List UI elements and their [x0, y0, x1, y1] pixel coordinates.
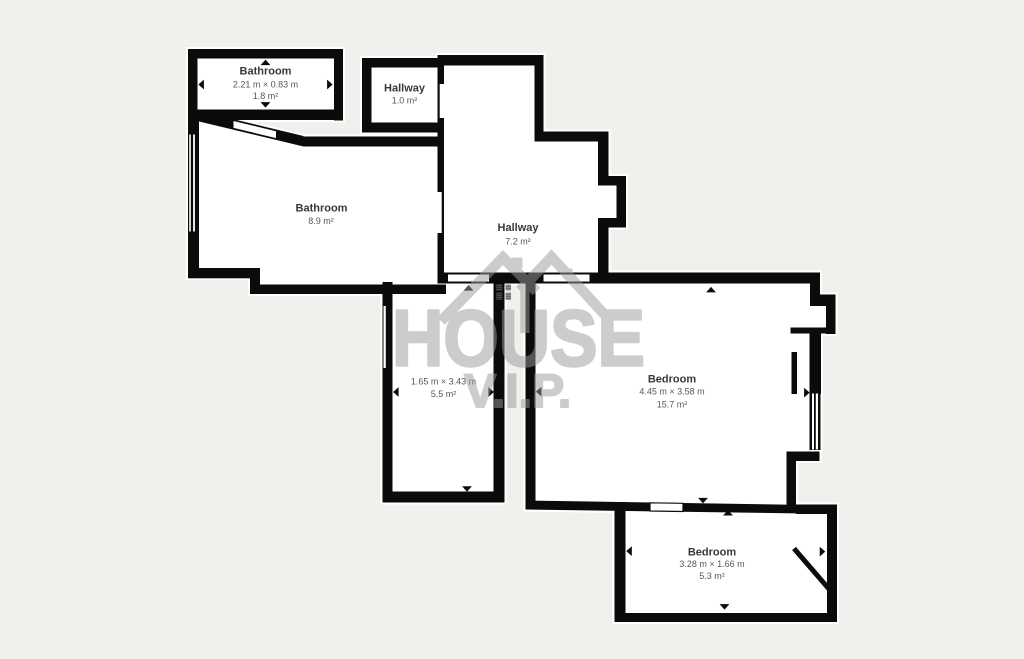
svg-text:15.7 m²: 15.7 m²: [657, 399, 688, 409]
svg-text:1.0 m²: 1.0 m²: [392, 95, 418, 105]
svg-text:7.2 m²: 7.2 m²: [505, 236, 531, 246]
svg-text:3.28 m × 1.66 m: 3.28 m × 1.66 m: [679, 559, 744, 569]
svg-text:5.5 m²: 5.5 m²: [431, 389, 457, 399]
svg-text:Bathroom: Bathroom: [296, 202, 348, 214]
svg-text:Bedroom: Bedroom: [648, 373, 697, 385]
svg-text:Bathroom: Bathroom: [240, 66, 292, 78]
svg-text:Hallway: Hallway: [384, 82, 426, 94]
svg-text:8.9 m²: 8.9 m²: [308, 216, 334, 226]
svg-text:Hallway: Hallway: [498, 222, 540, 234]
svg-text:2.21 m × 0.83 m: 2.21 m × 0.83 m: [233, 80, 298, 90]
svg-text:V.I.P.: V.I.P.: [464, 364, 571, 417]
svg-text:Bedroom: Bedroom: [688, 546, 737, 558]
svg-text:5.3 m²: 5.3 m²: [699, 571, 725, 581]
svg-text:4.45 m × 3.58 m: 4.45 m × 3.58 m: [639, 386, 704, 396]
svg-text:1.8 m²: 1.8 m²: [253, 91, 279, 101]
